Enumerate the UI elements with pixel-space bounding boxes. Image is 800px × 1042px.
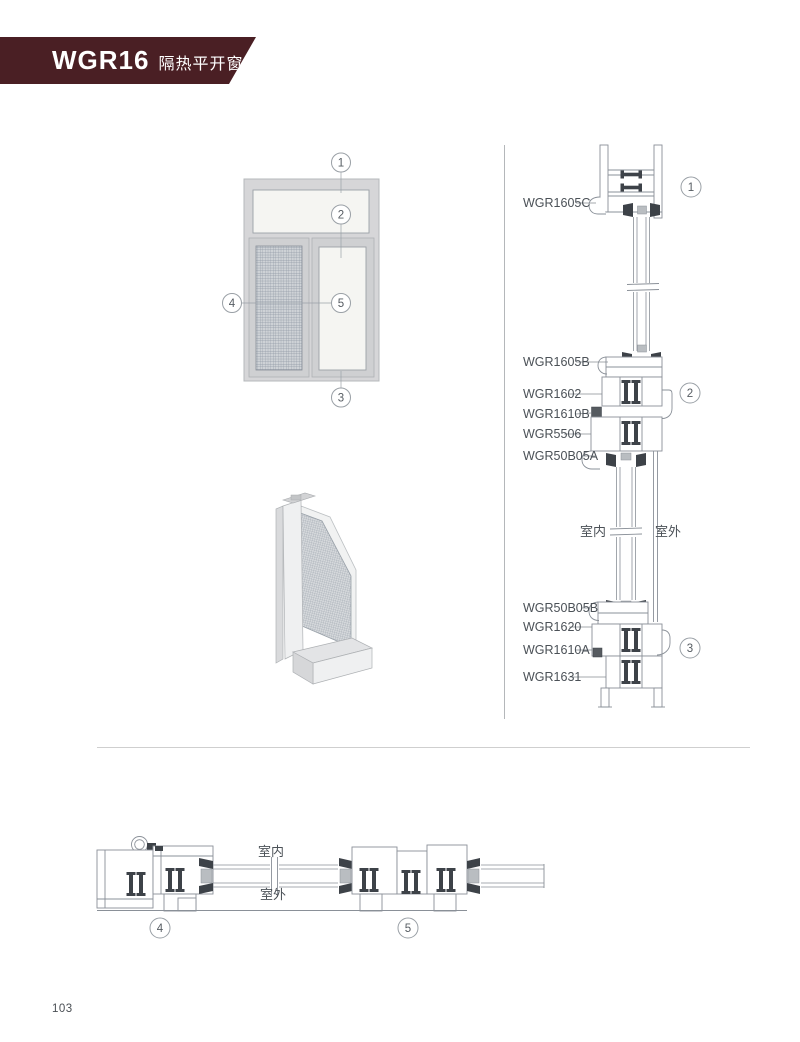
label-wgr1631: WGR1631 <box>523 670 581 684</box>
detail-3-number: 3 <box>687 643 693 655</box>
frame-jamb-profile <box>97 850 153 908</box>
callout-4-number: 4 <box>229 298 236 310</box>
profile-3d-view <box>255 488 385 700</box>
vertical-section-diagram: 室内 室外 WGR1605C <box>495 138 765 730</box>
insect-screen-mesh <box>256 246 302 370</box>
transom-glass <box>253 190 369 233</box>
vertical-profile-3d <box>283 500 303 659</box>
sash-jamb-profile <box>153 846 213 911</box>
callout-2-number: 2 <box>338 210 344 222</box>
section-divider-rule <box>97 747 750 748</box>
label-wgr1605c: WGR1605C <box>523 196 590 210</box>
exterior-label-horizontal: 室外 <box>260 887 286 902</box>
detail-5-number: 5 <box>405 923 411 935</box>
callout-5-number: 5 <box>338 298 344 310</box>
vertical-section-callouts: 1 2 3 <box>680 177 701 658</box>
mesh-panel-3d <box>295 511 351 647</box>
horizontal-section-diagram: 室内 室外 4 5 <box>90 828 560 943</box>
upper-glazing <box>627 217 659 351</box>
detail-4-number: 4 <box>157 923 164 935</box>
label-wgr1602: WGR1602 <box>523 387 581 401</box>
mid-glazing <box>610 451 658 622</box>
header-banner: WGR16 隔热平开窗 <box>0 37 256 84</box>
callout-3-number: 3 <box>338 393 344 405</box>
detail-2-number: 2 <box>687 388 693 400</box>
label-wgr50b05a: WGR50B05A <box>523 449 599 463</box>
horizontal-section-callouts: 4 5 <box>150 918 418 938</box>
exterior-label-vertical: 室外 <box>655 524 681 539</box>
head-frame-profile <box>589 145 662 218</box>
window-elevation-diagram: 1 2 3 4 5 <box>215 140 395 415</box>
model-code: WGR16 <box>52 45 149 76</box>
interior-label-horizontal: 室内 <box>258 844 284 859</box>
detail-1-number: 1 <box>688 182 694 194</box>
elevation-window <box>244 179 379 381</box>
label-wgr1610b: WGR1610B <box>523 407 590 421</box>
callout-1-number: 1 <box>338 158 344 170</box>
series-name: 隔热平开窗 <box>158 50 243 74</box>
mullion-profile <box>339 845 480 911</box>
profile-labels: WGR1605C WGR1605B WGR1602 WGR1610B WGR55… <box>523 196 599 684</box>
interior-label-vertical: 室内 <box>580 524 606 539</box>
label-wgr1605b: WGR1605B <box>523 355 590 369</box>
label-wgr50b05b: WGR50B05B <box>523 601 598 615</box>
label-wgr1620: WGR1620 <box>523 620 581 634</box>
label-wgr1610a: WGR1610A <box>523 643 590 657</box>
label-wgr5506: WGR5506 <box>523 427 581 441</box>
page-number: 103 <box>52 1003 73 1015</box>
profile-3d-render <box>276 493 372 684</box>
